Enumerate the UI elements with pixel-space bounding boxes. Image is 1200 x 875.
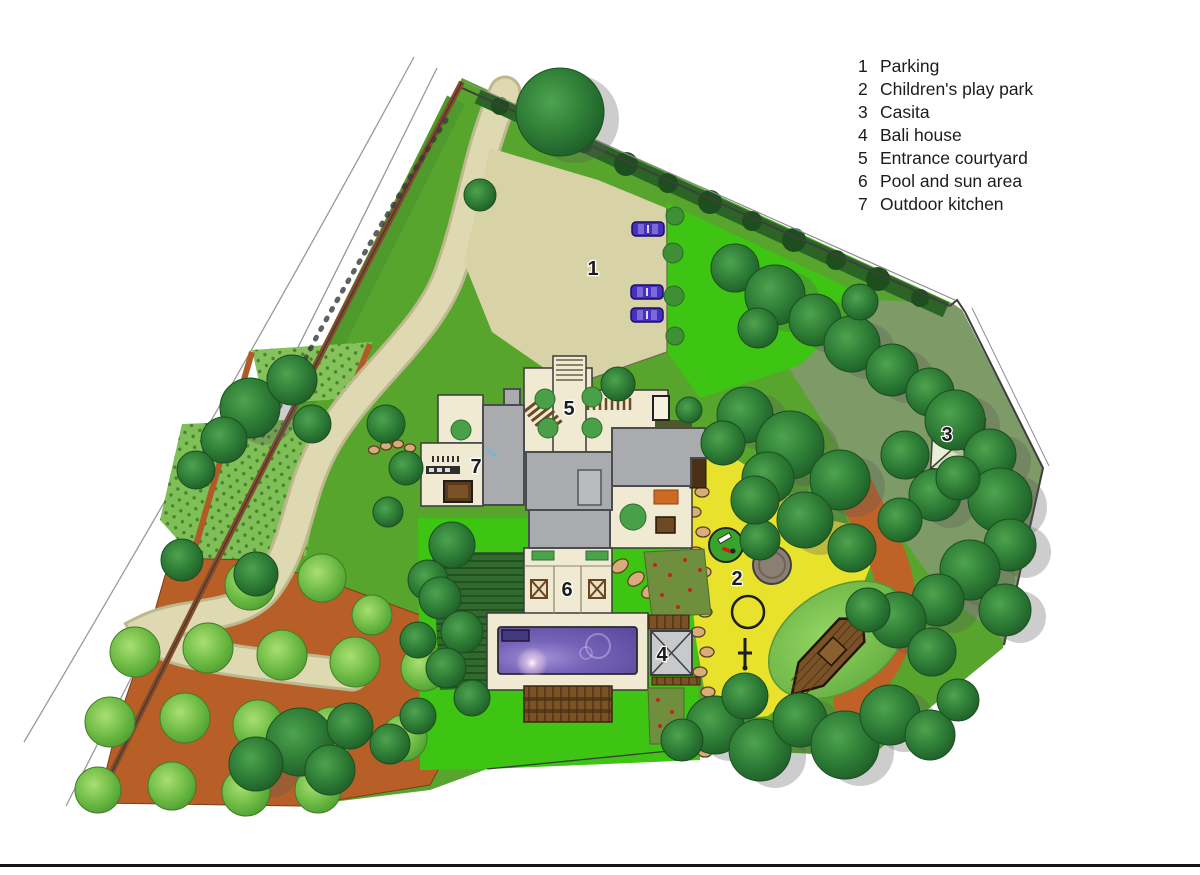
tree bbox=[234, 552, 278, 596]
tree bbox=[777, 492, 833, 548]
tree bbox=[161, 539, 203, 581]
legend-item-number: 6 bbox=[858, 170, 875, 193]
tree bbox=[177, 451, 215, 489]
tree bbox=[731, 476, 779, 524]
tree bbox=[75, 767, 121, 813]
tree bbox=[516, 68, 604, 156]
tree bbox=[293, 405, 331, 443]
orange-terrace-patch bbox=[654, 490, 678, 504]
sun-lounger-icon bbox=[531, 580, 547, 598]
tree bbox=[740, 520, 780, 560]
tree bbox=[400, 698, 436, 734]
tree bbox=[846, 588, 890, 632]
tree bbox=[373, 497, 403, 527]
legend-item-number: 3 bbox=[858, 101, 875, 124]
legend-item-label: Pool and sun area bbox=[880, 171, 1022, 191]
car-icon bbox=[631, 308, 663, 322]
plan-label-outdoor-kitchen: 7 bbox=[470, 456, 481, 478]
tree bbox=[183, 623, 233, 673]
bottom-rule bbox=[0, 864, 1200, 867]
legend-item: 3Casita bbox=[858, 101, 1033, 124]
plan-label-play-park: 2 bbox=[731, 568, 742, 590]
tree bbox=[908, 628, 956, 676]
skylight bbox=[578, 470, 601, 505]
tree bbox=[979, 584, 1031, 636]
legend-item: 5Entrance courtyard bbox=[858, 147, 1033, 170]
legend-item: 2Children's play park bbox=[858, 78, 1033, 101]
roof-south-block bbox=[529, 510, 610, 548]
tree bbox=[400, 622, 436, 658]
legend-item: 1Parking bbox=[858, 55, 1033, 78]
tree bbox=[305, 745, 355, 795]
pergola-strip bbox=[690, 458, 706, 488]
car-icon bbox=[631, 285, 663, 299]
garden-gate bbox=[653, 396, 669, 420]
tree bbox=[229, 737, 283, 791]
tree bbox=[267, 355, 317, 405]
legend-item-label: Casita bbox=[880, 102, 930, 122]
tree bbox=[676, 397, 702, 423]
tree bbox=[257, 630, 307, 680]
pool-steps bbox=[502, 630, 529, 641]
legend-item-label: Entrance courtyard bbox=[880, 148, 1028, 168]
tree bbox=[701, 421, 745, 465]
legend-item-label: Outdoor kitchen bbox=[880, 194, 1004, 214]
legend-item: 7Outdoor kitchen bbox=[858, 193, 1033, 216]
plan-label-bali-house: 4 bbox=[656, 644, 668, 666]
tree bbox=[738, 308, 778, 348]
tree bbox=[298, 554, 346, 602]
legend-item-number: 4 bbox=[858, 124, 875, 147]
tree bbox=[110, 627, 160, 677]
legend-item-label: Bali house bbox=[880, 125, 962, 145]
play-equipment bbox=[709, 528, 743, 562]
tree bbox=[327, 703, 373, 749]
tree bbox=[367, 405, 405, 443]
roof-west-wing bbox=[483, 405, 524, 505]
tree bbox=[936, 456, 980, 500]
planter-box bbox=[656, 517, 675, 533]
tree bbox=[722, 673, 768, 719]
legend-item-number: 7 bbox=[858, 193, 875, 216]
plan-label-pool: 6 bbox=[561, 579, 572, 601]
swimming-pool bbox=[498, 627, 637, 679]
tree bbox=[454, 680, 490, 716]
plan-label-parking: 1 bbox=[587, 258, 598, 280]
tree bbox=[464, 179, 496, 211]
legend-item-label: Children's play park bbox=[880, 79, 1033, 99]
tree bbox=[352, 595, 392, 635]
legend-item-number: 2 bbox=[858, 78, 875, 101]
tree bbox=[881, 431, 929, 479]
tree bbox=[160, 693, 210, 743]
legend: 1Parking 2Children's play park 3Casita 4… bbox=[858, 55, 1033, 216]
tree bbox=[441, 611, 483, 653]
legend-item: 6Pool and sun area bbox=[858, 170, 1033, 193]
tree bbox=[426, 648, 466, 688]
tree bbox=[878, 498, 922, 542]
legend-item-number: 1 bbox=[858, 55, 875, 78]
tree bbox=[370, 724, 410, 764]
garden-design-plan-page: 1 2 3 4 5 6 7 1Parking 2Children's play … bbox=[0, 0, 1200, 875]
tree bbox=[937, 679, 979, 721]
tree bbox=[661, 719, 703, 761]
tree bbox=[330, 637, 380, 687]
plan-label-entrance-courtyard: 5 bbox=[563, 398, 574, 420]
sun-lounger-icon bbox=[589, 580, 605, 598]
tree bbox=[828, 524, 876, 572]
legend-item-number: 5 bbox=[858, 147, 875, 170]
tree bbox=[148, 762, 196, 810]
wooden-deck bbox=[524, 686, 612, 722]
car-icon bbox=[632, 222, 664, 236]
plan-label-casita: 3 bbox=[941, 424, 952, 446]
legend-item: 4Bali house bbox=[858, 124, 1033, 147]
legend-item-label: Parking bbox=[880, 56, 939, 76]
tree bbox=[601, 367, 635, 401]
tree bbox=[389, 451, 423, 485]
roof-north-block bbox=[504, 389, 520, 405]
tree bbox=[85, 697, 135, 747]
tree bbox=[842, 284, 878, 320]
